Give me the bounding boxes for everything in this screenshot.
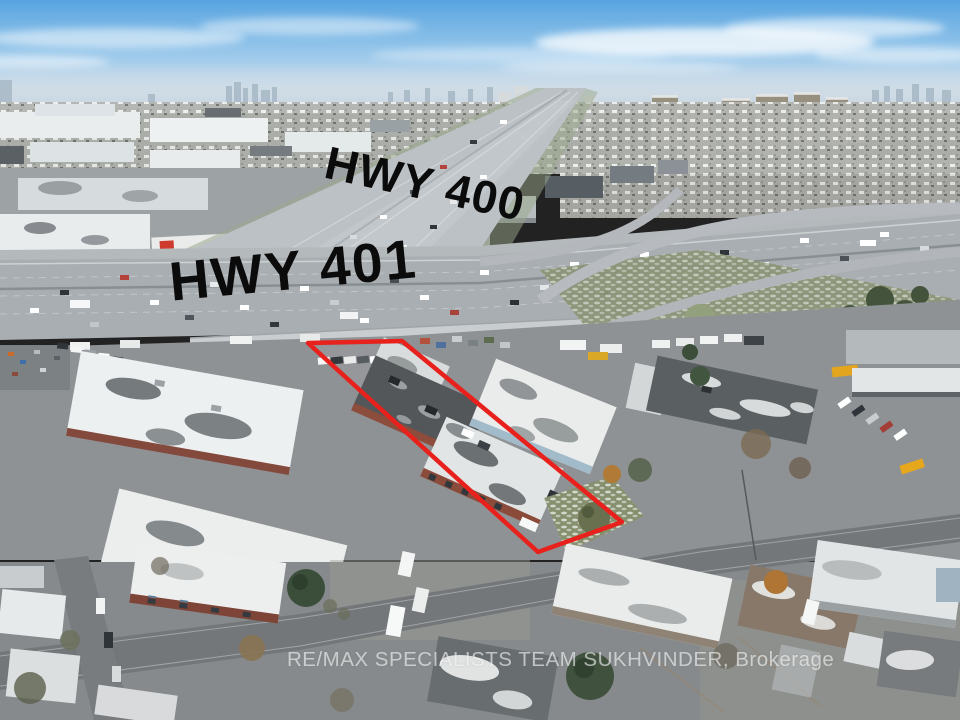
autumn-tree [603,465,621,483]
aerial-photo: HWY 400 HWY 401 RE/MAX SPECIALISTS TEAM … [0,0,960,720]
watermark-text: RE/MAX SPECIALISTS TEAM SUKHVINDER, Brok… [287,648,834,672]
scene-svg [0,0,960,720]
building-far-right [846,330,960,397]
